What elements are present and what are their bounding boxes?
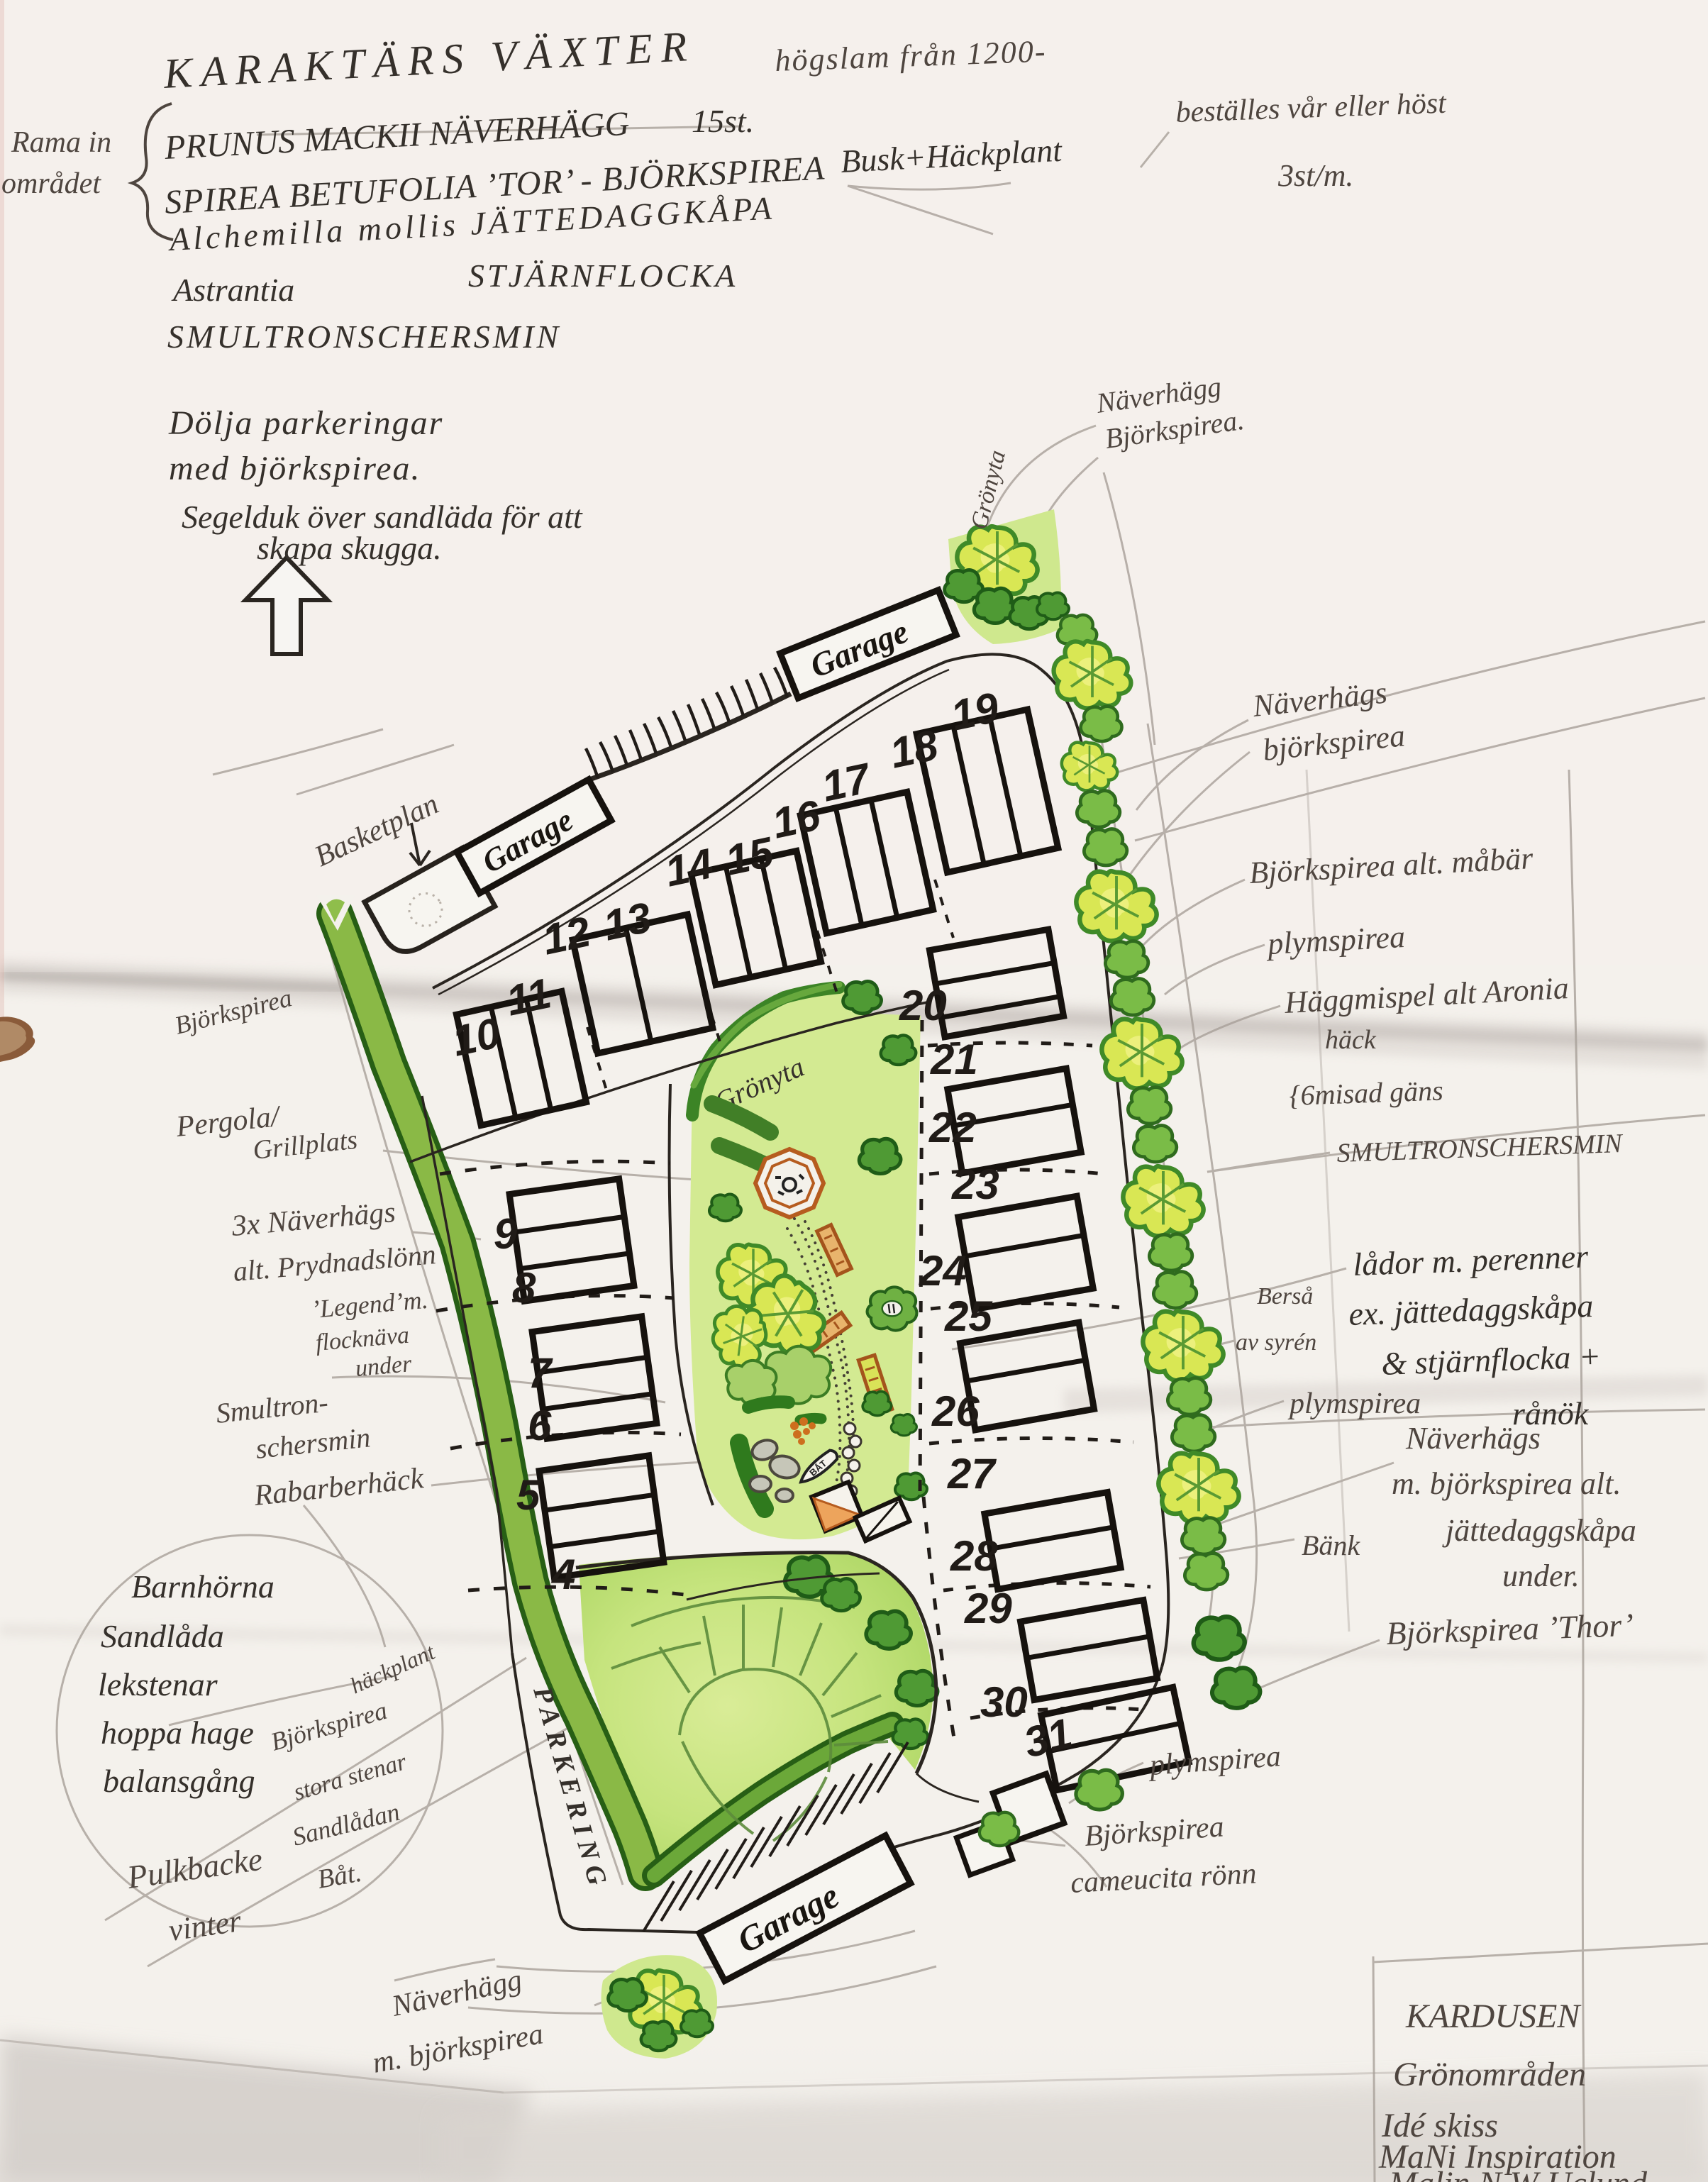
svg-text:4: 4 [551, 1551, 575, 1598]
svg-text:av syrén: av syrén [1236, 1329, 1316, 1356]
svg-text:24: 24 [919, 1247, 967, 1295]
svg-text:23: 23 [951, 1161, 999, 1208]
svg-text:14: 14 [661, 839, 717, 895]
svg-text:22: 22 [928, 1104, 977, 1151]
svg-text:plymspirea: plymspirea [1265, 919, 1406, 961]
svg-text:under.: under. [1502, 1558, 1580, 1593]
svg-text:KARDUSEN: KARDUSEN [1405, 1998, 1582, 2035]
svg-text:balansgång: balansgång [103, 1763, 255, 1799]
svg-text:plymspirea: plymspirea [1287, 1388, 1421, 1420]
svg-text:området: området [1, 167, 101, 200]
svg-text:7: 7 [528, 1349, 553, 1397]
svg-text:21: 21 [930, 1036, 978, 1083]
svg-text:Sandlåda: Sandlåda [101, 1618, 224, 1654]
svg-text:Rama in: Rama in [11, 126, 111, 159]
svg-text:10: 10 [448, 1009, 504, 1065]
svg-text:SMULTRONSCHERSMIN: SMULTRONSCHERSMIN [167, 319, 561, 355]
svg-text:häck: häck [1325, 1025, 1377, 1055]
svg-text:Bänk: Bänk [1302, 1529, 1360, 1561]
svg-text:5: 5 [516, 1471, 541, 1519]
svg-text:jättedaggskåpa: jättedaggskåpa [1442, 1513, 1636, 1548]
svg-text:skapa skugga.: skapa skugga. [257, 530, 442, 566]
svg-text:29: 29 [964, 1585, 1012, 1632]
svg-text:30: 30 [980, 1678, 1028, 1726]
svg-text:& stjärnflocka +: & stjärnflocka + [1381, 1338, 1602, 1382]
svg-text:Barnhörna: Barnhörna [131, 1568, 274, 1605]
svg-text:12: 12 [538, 907, 594, 963]
svg-text:Näverhägs: Näverhägs [1405, 1421, 1541, 1456]
svg-text:28: 28 [950, 1532, 998, 1580]
svg-text:Grönområden: Grönområden [1393, 2056, 1586, 2093]
svg-text:25: 25 [944, 1292, 993, 1340]
svg-text:13: 13 [599, 893, 655, 949]
svg-text:Astrantia: Astrantia [171, 272, 294, 308]
svg-text:Berså: Berså [1257, 1283, 1313, 1309]
svg-text:26: 26 [931, 1388, 980, 1435]
svg-text:27: 27 [947, 1450, 997, 1497]
svg-text:8: 8 [512, 1264, 536, 1312]
svg-text:m. björkspirea alt.: m. björkspirea alt. [1392, 1466, 1621, 1501]
svg-text:med björkspirea.: med björkspirea. [169, 450, 421, 487]
svg-text:lekstenar: lekstenar [98, 1666, 218, 1702]
svg-text:15st.: 15st. [692, 103, 754, 139]
svg-text:Malin N W Uclund: Malin N W Uclund [1388, 2165, 1648, 2182]
svg-text:STJÄRNFLOCKA: STJÄRNFLOCKA [468, 257, 738, 294]
svg-text:hoppa hage: hoppa hage [101, 1715, 254, 1751]
svg-text:3st/m.: 3st/m. [1277, 158, 1353, 193]
svg-text:under: under [354, 1351, 413, 1382]
svg-text:6: 6 [528, 1402, 552, 1449]
svg-text:20: 20 [899, 982, 947, 1029]
svg-text:Dölja parkeringar: Dölja parkeringar [168, 404, 443, 442]
svg-text:{6misad gäns: {6misad gäns [1289, 1074, 1444, 1112]
svg-text:9: 9 [494, 1210, 518, 1258]
